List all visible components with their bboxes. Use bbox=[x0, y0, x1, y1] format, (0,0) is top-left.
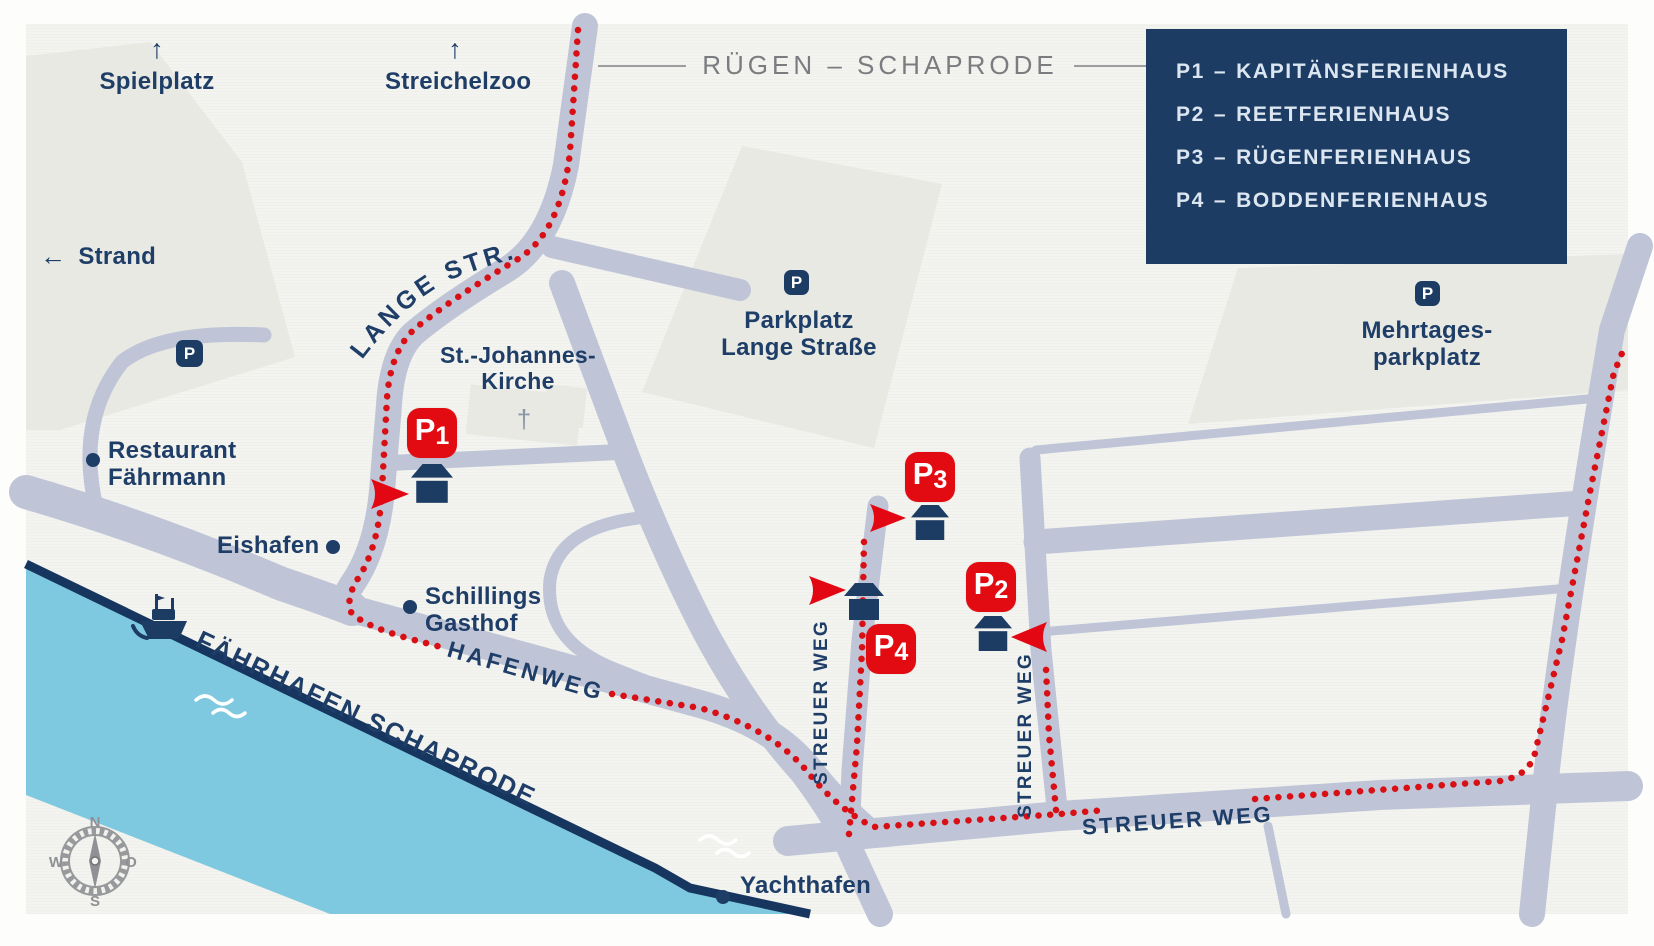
marker-digit: 2 bbox=[994, 578, 1008, 612]
legend-name: KAPITÄNSFERIENHAUS bbox=[1236, 60, 1509, 84]
compass-w: W bbox=[49, 854, 64, 871]
marker-letter: P bbox=[913, 458, 934, 502]
church-cross-icon: † bbox=[517, 404, 531, 434]
legend-code: P2 bbox=[1176, 103, 1205, 127]
poi-label-line: Mehrtages- bbox=[1347, 317, 1507, 344]
title-rule-left bbox=[598, 65, 686, 67]
legend-code: P4 bbox=[1176, 189, 1205, 213]
legend-name: RÜGENFERIENHAUS bbox=[1236, 146, 1472, 170]
legend-dash: – bbox=[1214, 189, 1227, 213]
poi-dot-eishafen bbox=[326, 540, 340, 554]
arrow-icon-p4 bbox=[809, 576, 846, 605]
road-south-stub bbox=[1268, 826, 1286, 914]
legend-item-p2: P2–REETFERIENHAUS bbox=[1176, 103, 1567, 146]
poi-label-line: Kirche bbox=[438, 368, 598, 394]
parking-icon-mehrtagesparkplatz: P bbox=[1415, 281, 1440, 306]
legend-item-p1: P1–KAPITÄNSFERIENHAUS bbox=[1176, 60, 1567, 103]
legend-dash: – bbox=[1214, 103, 1227, 127]
marker-letter: P bbox=[415, 414, 436, 458]
poi-label-restaurant-faehrmann: Restaurant Fährmann bbox=[108, 437, 236, 492]
poi-dot-yachthafen bbox=[716, 890, 730, 904]
legend-dash: – bbox=[1214, 146, 1227, 170]
poi-label-parkplatz-lange-strasse: Parkplatz Lange Straße bbox=[719, 307, 879, 362]
marker-p3: P3 bbox=[905, 452, 955, 502]
poi-label-st-johannes-kirche: St.-Johannes- Kirche bbox=[438, 342, 598, 394]
poi-dot-schillings bbox=[403, 600, 417, 614]
poi-label-line: parkplatz bbox=[1347, 344, 1507, 371]
poi-label-line: Fährmann bbox=[108, 464, 236, 491]
marker-letter: P bbox=[974, 568, 995, 612]
spielplatz-arrow-icon: ↑ bbox=[97, 36, 217, 63]
parking-icon-parkplatz-lange: P bbox=[784, 270, 809, 295]
poi-label-line: Gasthof bbox=[425, 610, 541, 637]
marker-digit: 1 bbox=[435, 424, 449, 458]
poi-label-spielplatz: Spielplatz bbox=[97, 68, 217, 95]
compass-s: S bbox=[90, 893, 100, 910]
marker-p2: P2 bbox=[966, 562, 1016, 612]
legend-name: REETFERIENHAUS bbox=[1236, 103, 1451, 127]
arrow-icon-p2 bbox=[1011, 622, 1047, 652]
poi-label-line: St.-Johannes- bbox=[438, 342, 598, 368]
ferry-cabin bbox=[152, 609, 175, 620]
marker-letter: P bbox=[874, 630, 895, 674]
poi-label-yachthafen: Yachthafen bbox=[740, 872, 871, 899]
legend-name: BODDENFERIENHAUS bbox=[1236, 189, 1489, 213]
block-top-left bbox=[26, 42, 295, 430]
road-lane-lower bbox=[1040, 588, 1570, 632]
poi-dot-restaurant bbox=[86, 453, 100, 467]
legend-dash: – bbox=[1214, 60, 1227, 84]
map-canvas: LANGE STR. HAFENWEG FÄHRHAFEN SCHAPRODE … bbox=[0, 0, 1654, 946]
house-icon-p2 bbox=[974, 616, 1012, 651]
wave-icon bbox=[717, 850, 749, 857]
strand-arrow-icon: ← bbox=[40, 242, 66, 272]
poi-label-streichelzoo: Streichelzoo bbox=[385, 68, 525, 95]
house-icon-p4 bbox=[844, 583, 884, 620]
wave-icon bbox=[700, 836, 736, 844]
page-title: RÜGEN – SCHAPRODE bbox=[702, 50, 1058, 81]
poi-label-line: Schillings bbox=[425, 583, 541, 610]
house-icon-p1 bbox=[411, 464, 453, 503]
title-rule-right bbox=[1074, 65, 1150, 67]
poi-label-line: Parkplatz bbox=[719, 307, 879, 334]
compass-n: N bbox=[90, 814, 101, 831]
legend: P1–KAPITÄNSFERIENHAUS P2–REETFERIENHAUS … bbox=[1146, 29, 1567, 264]
block-parkplatz-lange bbox=[642, 146, 942, 448]
legend-code: P1 bbox=[1176, 60, 1205, 84]
street-label-streuer-weg-east: STREUER WEG bbox=[1015, 652, 1036, 818]
house-icon-p3 bbox=[911, 505, 949, 540]
marker-p4: P4 bbox=[866, 624, 916, 674]
poi-strand: ← Strand bbox=[40, 242, 156, 272]
poi-label-strand: Strand bbox=[78, 243, 156, 270]
legend-item-p4: P4–BODDENFERIENHAUS bbox=[1176, 189, 1567, 232]
street-label-streuer-weg-west: STREUER WEG bbox=[811, 619, 832, 785]
marker-p1: P1 bbox=[407, 408, 457, 458]
poi-label-schillings-gasthof: Schillings Gasthof bbox=[425, 583, 541, 638]
marker-digit: 3 bbox=[933, 468, 947, 502]
road-lane-middle bbox=[1036, 503, 1582, 542]
compass-o: O bbox=[125, 854, 137, 871]
streichelzoo-arrow-icon: ↑ bbox=[385, 36, 525, 63]
legend-item-p3: P3–RÜGENFERIENHAUS bbox=[1176, 146, 1567, 189]
marker-digit: 4 bbox=[894, 640, 908, 674]
parking-icon-restaurant: P bbox=[176, 340, 203, 367]
poi-label-mehrtagesparkplatz: Mehrtages- parkplatz bbox=[1347, 317, 1507, 372]
poi-label-line: Lange Straße bbox=[719, 334, 879, 361]
map-title-row: RÜGEN – SCHAPRODE bbox=[596, 50, 1152, 81]
poi-label-eishafen: Eishafen bbox=[217, 532, 317, 559]
poi-label-line: Restaurant bbox=[108, 437, 236, 464]
legend-code: P3 bbox=[1176, 146, 1205, 170]
